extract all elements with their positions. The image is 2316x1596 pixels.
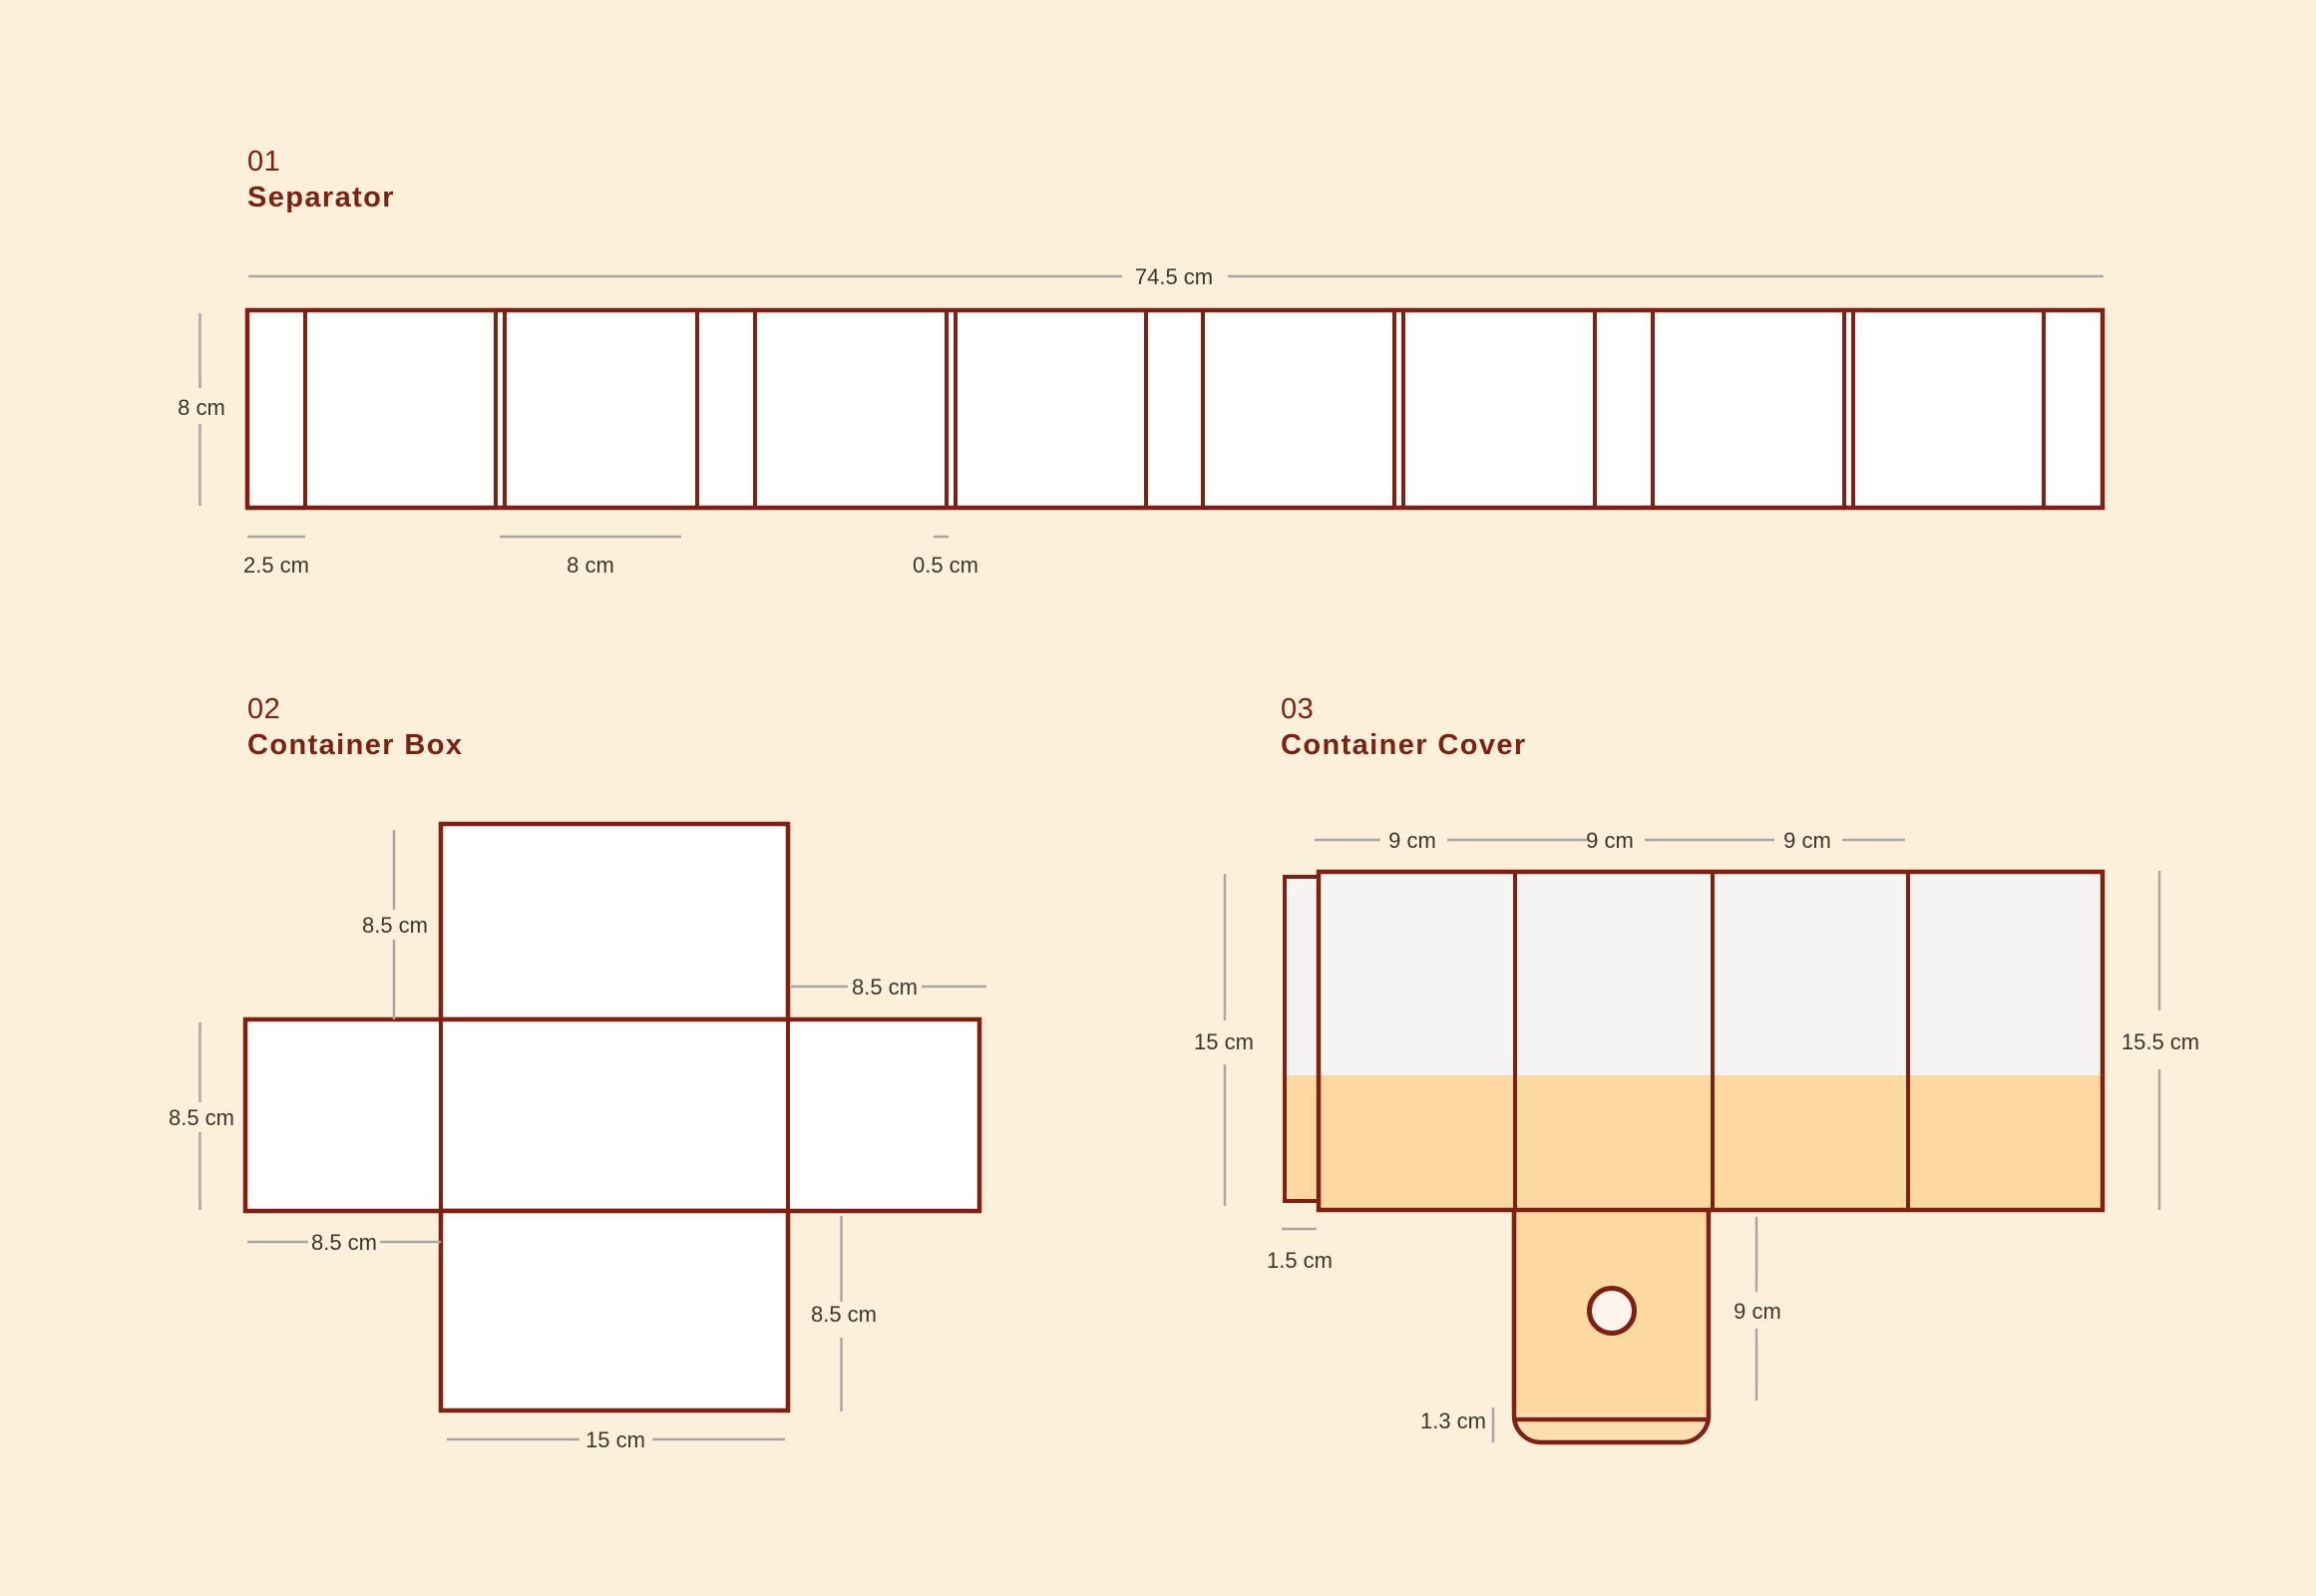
svg-text:03: 03: [1281, 693, 1314, 725]
svg-text:0.5 cm: 0.5 cm: [913, 553, 978, 578]
svg-text:74.5 cm: 74.5 cm: [1135, 264, 1213, 289]
svg-text:9 cm: 9 cm: [1734, 1299, 1781, 1324]
svg-text:8.5 cm: 8.5 cm: [311, 1230, 377, 1255]
svg-text:8.5 cm: 8.5 cm: [169, 1105, 234, 1130]
svg-text:1.3 cm: 1.3 cm: [1420, 1408, 1486, 1433]
svg-text:8.5 cm: 8.5 cm: [852, 975, 918, 999]
svg-text:8.5 cm: 8.5 cm: [362, 913, 428, 938]
svg-text:2.5 cm: 2.5 cm: [243, 553, 309, 578]
svg-text:Container Box: Container Box: [247, 729, 463, 761]
svg-text:9 cm: 9 cm: [1783, 828, 1831, 853]
svg-text:Separator: Separator: [247, 182, 395, 213]
svg-text:15.5 cm: 15.5 cm: [2122, 1029, 2199, 1054]
svg-text:1.5 cm: 1.5 cm: [1267, 1248, 1333, 1273]
svg-text:8 cm: 8 cm: [178, 395, 225, 420]
svg-text:Container Cover: Container Cover: [1281, 729, 1527, 761]
svg-text:8 cm: 8 cm: [567, 553, 614, 578]
svg-text:02: 02: [247, 693, 280, 725]
svg-text:15 cm: 15 cm: [585, 1427, 645, 1452]
svg-text:8.5 cm: 8.5 cm: [811, 1302, 877, 1327]
svg-text:15 cm: 15 cm: [1194, 1029, 1254, 1054]
svg-text:9 cm: 9 cm: [1586, 828, 1634, 853]
svg-text:9 cm: 9 cm: [1388, 828, 1436, 853]
svg-text:01: 01: [247, 146, 280, 178]
